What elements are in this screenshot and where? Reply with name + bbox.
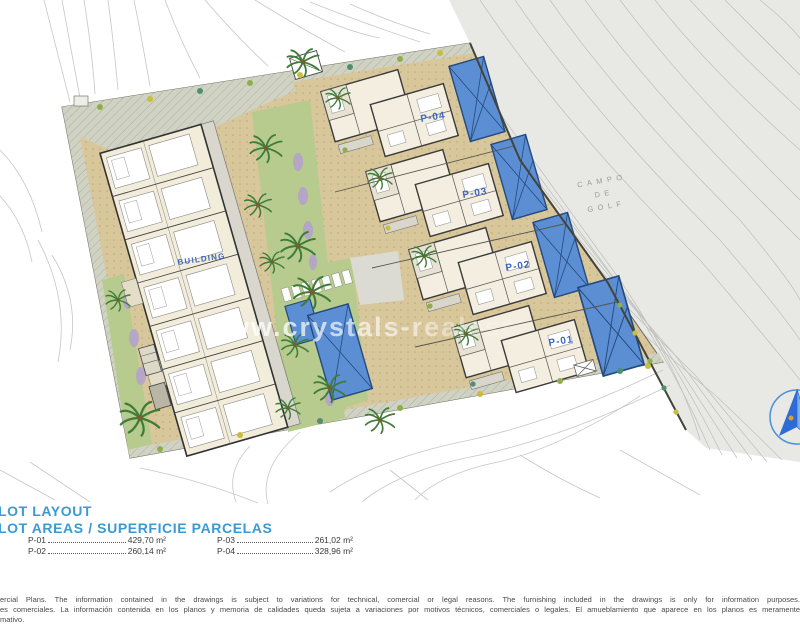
- plot-layout-title: PLOT LAYOUT: [0, 503, 92, 519]
- plot-area-value: 260,14 m²: [128, 546, 166, 556]
- disclaimer-line-3: mativo.: [0, 615, 800, 625]
- plot-areas-column-right: P-03 261,02 m² P-04 328,96 m²: [217, 534, 353, 556]
- leader-dots: [237, 542, 313, 543]
- plot-area-row-p04: P-04 328,96 m²: [217, 545, 353, 556]
- plot-area-value: 261,02 m²: [315, 535, 353, 545]
- leader-dots: [48, 542, 126, 543]
- plot-area-row-p03: P-03 261,02 m²: [217, 534, 353, 545]
- leader-dots: [237, 553, 313, 554]
- disclaimer-line-1: ercial Plans. The information contained …: [0, 595, 800, 605]
- plot-area-row-p02: P-02 260,14 m²: [28, 545, 166, 556]
- leader-dots: [48, 553, 126, 554]
- plot-area-row-p01: P-01 429,70 m²: [28, 534, 166, 545]
- plot-area-label: P-02: [28, 546, 46, 556]
- site-plan-page: { "plan": { "watermark": "www.crystals-r…: [0, 0, 800, 640]
- plot-area-value: 429,70 m²: [128, 535, 166, 545]
- plot-area-label: P-01: [28, 535, 46, 545]
- watermark: www.crystals-realest: [204, 312, 513, 342]
- plot-areas-column-left: P-01 429,70 m² P-02 260,14 m²: [28, 534, 166, 556]
- plot-area-label: P-03: [217, 535, 235, 545]
- disclaimer: ercial Plans. The information contained …: [0, 595, 800, 625]
- plot-area-label: P-04: [217, 546, 235, 556]
- disclaimer-line-2: es comerciales. La información contenida…: [0, 605, 800, 615]
- plot-area-value: 328,96 m²: [315, 546, 353, 556]
